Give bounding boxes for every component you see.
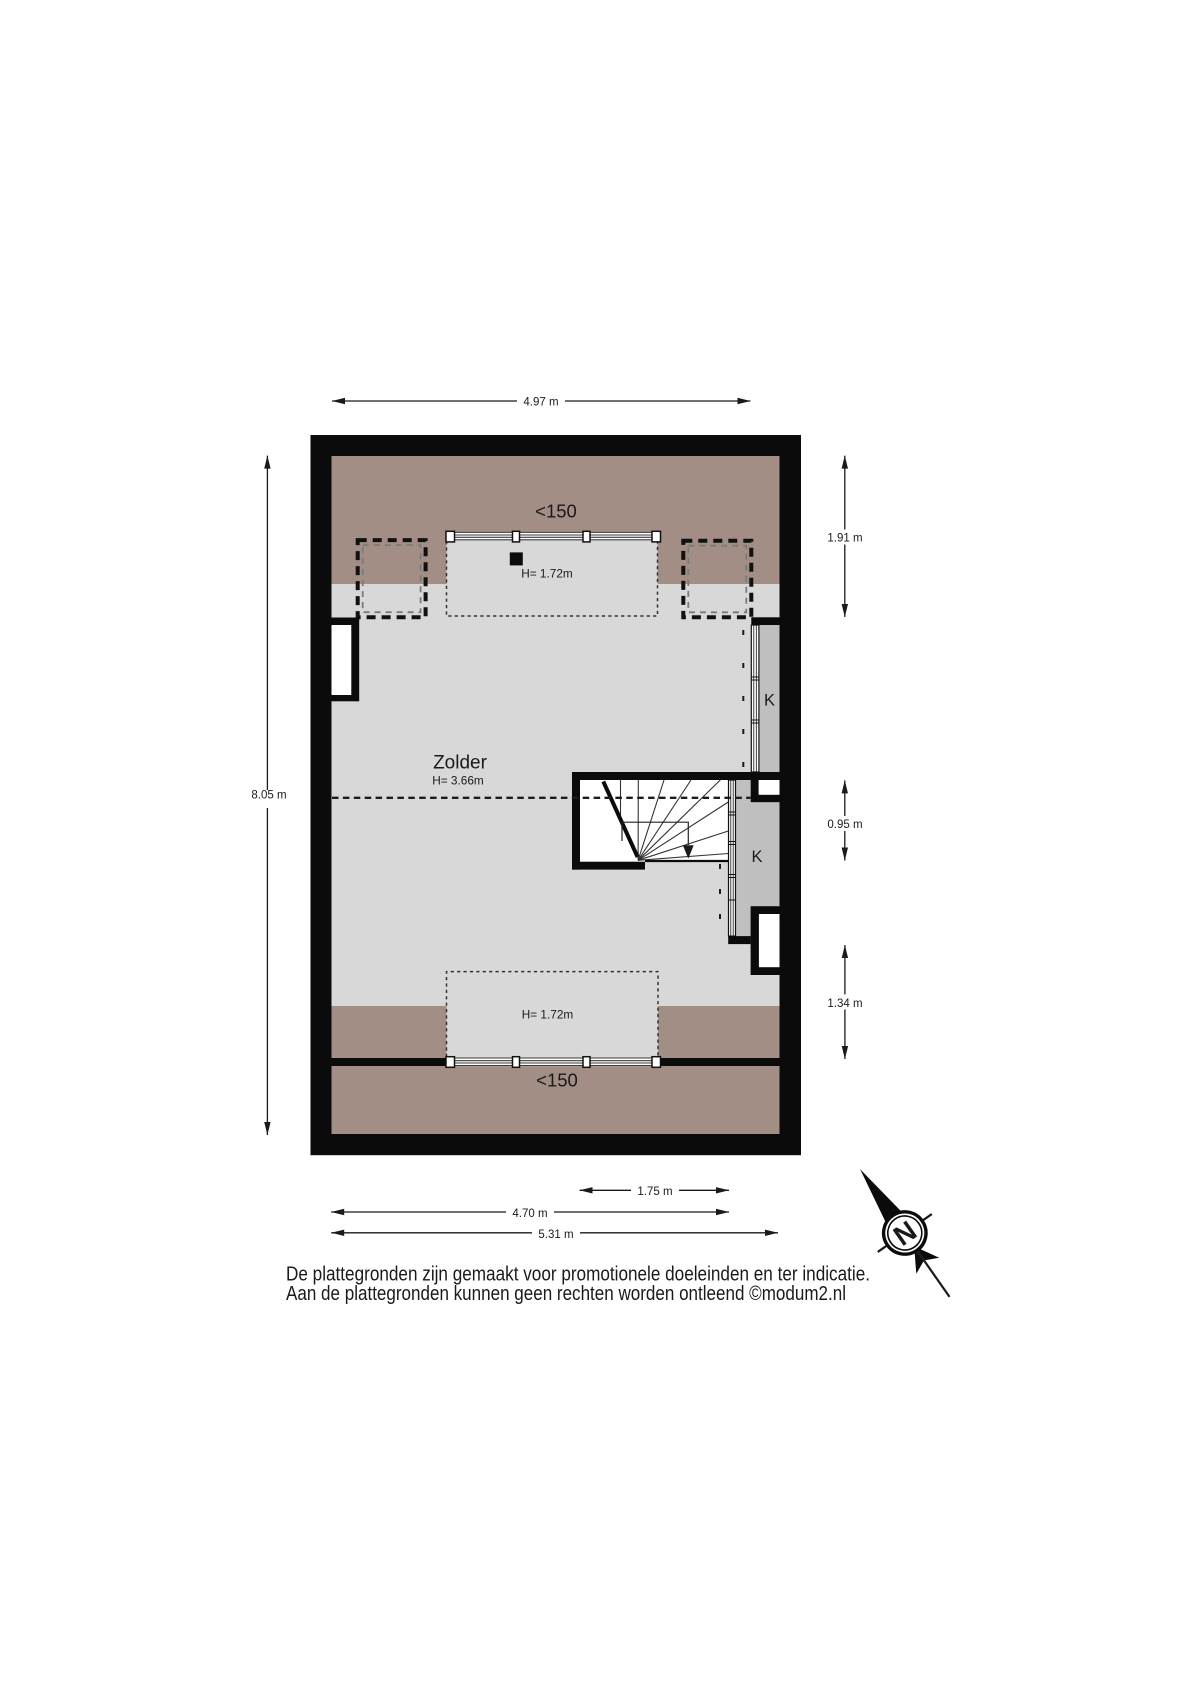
svg-text:H= 1.72m: H= 1.72m [522, 1008, 574, 1022]
svg-text:<150: <150 [536, 1070, 578, 1091]
svg-text:H= 1.72m: H= 1.72m [521, 567, 573, 581]
svg-text:1.34 m: 1.34 m [827, 998, 862, 1010]
svg-text:Zolder: Zolder [433, 753, 488, 774]
svg-text:<150: <150 [535, 501, 577, 522]
svg-text:H= 3.66m: H= 3.66m [432, 774, 484, 788]
svg-text:5.31 m: 5.31 m [538, 1229, 573, 1241]
svg-text:4.97 m: 4.97 m [523, 397, 558, 409]
svg-text:4.70 m: 4.70 m [512, 1208, 547, 1220]
svg-text:1.75 m: 1.75 m [637, 1186, 672, 1198]
svg-text:8.05 m: 8.05 m [251, 790, 286, 802]
svg-text:Aan de plattegronden kunnen ge: Aan de plattegronden kunnen geen rechten… [286, 1283, 846, 1305]
svg-text:K: K [764, 692, 775, 710]
svg-text:K: K [751, 848, 762, 866]
svg-text:1.91 m: 1.91 m [827, 533, 862, 545]
svg-text:0.95 m: 0.95 m [827, 819, 862, 831]
